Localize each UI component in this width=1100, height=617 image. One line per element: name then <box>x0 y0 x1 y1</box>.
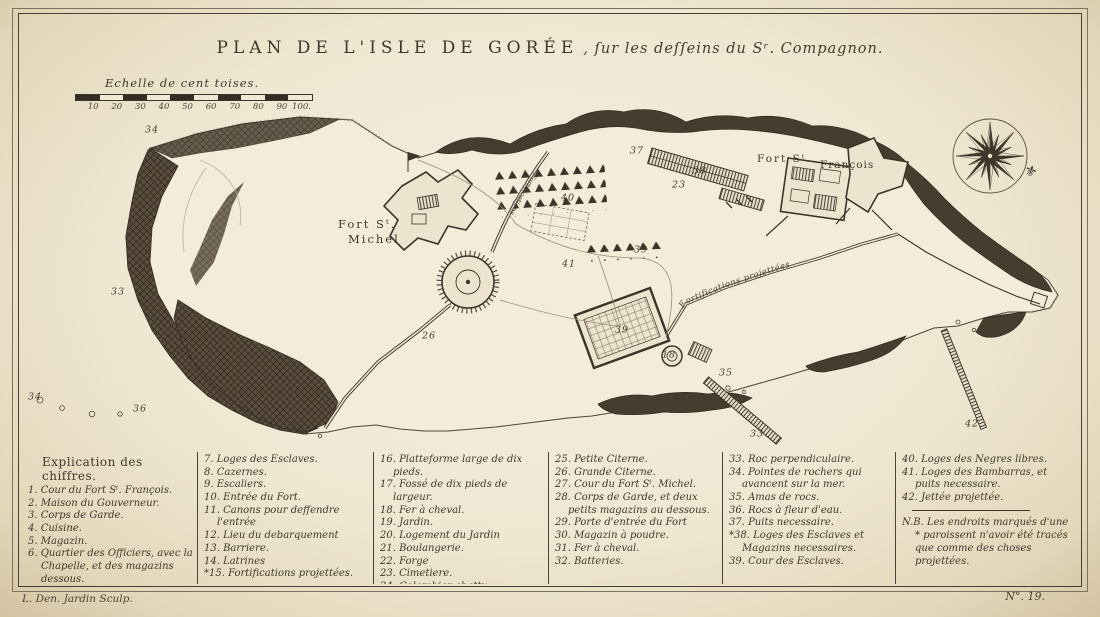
scale-tick: 90 <box>264 102 288 112</box>
legend-item: *15. Fortifications projettées. <box>204 568 370 581</box>
legend-item: 40. Loges des Negres libres. <box>902 454 1075 467</box>
legend-column-6: 40. Loges des Negres libres.41. Loges de… <box>895 452 1078 584</box>
plate-number: N°. 19. <box>1005 590 1045 603</box>
scale-label: Echelle de cent toises. <box>105 76 325 90</box>
title-subtitle: , ſur les deſſeins du Sʳ. Compagnon. <box>583 41 883 57</box>
legend-item: 36. Rocs à fleur d'eau. <box>729 505 892 518</box>
title-main: PLAN DE L'ISLE DE GORÉE <box>217 38 579 58</box>
legend-item: 31. Fer à cheval. <box>555 543 719 556</box>
legend-note: N.B. Les endroits marqués d'une * parois… <box>902 516 1075 568</box>
legend-item: 26. Grande Citerne. <box>555 467 719 480</box>
legend-item: 10. Entrée du Fort. <box>204 492 370 505</box>
scale-tick: 60 <box>193 102 217 112</box>
legend-item: 30. Magazin à poudre. <box>555 530 719 543</box>
legend-item: 39. Cour des Esclaves. <box>729 556 892 569</box>
legend-item: 35. Amas de rocs. <box>729 492 892 505</box>
legend-item: 3. Corps de Garde. <box>28 510 194 523</box>
scale-ticks: 102030405060708090100. <box>75 102 317 112</box>
compass-rose-icon: ⚜ <box>946 112 1046 202</box>
scale-tick: 10 <box>75 102 99 112</box>
legend-item: 18. Fer à cheval. <box>380 505 545 518</box>
legend-item: 42. Jettée projettée. <box>902 492 1075 505</box>
legend-item: 14. Latrines <box>204 556 370 569</box>
legend-item: 37. Puits necessaire. <box>729 517 892 530</box>
legend-item: 4. Cuisine. <box>28 523 194 536</box>
legend-item: 13. Barriere. <box>204 543 370 556</box>
fort-francois-label-line2: François <box>820 159 874 171</box>
legend-item: 25. Petite Citerne. <box>555 454 719 467</box>
legend-column-3: 16. Platteforme large de dix pieds.17. F… <box>373 452 548 584</box>
legend-item: 11. Canons pour deffendre l'entrée <box>204 505 370 530</box>
legend-item: 19. Jardin. <box>380 517 545 530</box>
legend-item: 33. Roc perpendiculaire. <box>729 454 892 467</box>
projected-jetty <box>941 329 986 430</box>
plate-title: PLAN DE L'ISLE DE GORÉE , ſur les deſſei… <box>0 38 1100 58</box>
scale-tick: 80 <box>240 102 264 112</box>
scale-tick: 100. <box>287 102 311 112</box>
legend-item: *38. Loges des Esclaves et Magazins nece… <box>729 530 892 555</box>
engraver-credit: L. Den. Jardin Sculp. <box>22 593 133 605</box>
legend-column-4: 25. Petite Citerne.26. Grande Citerne.27… <box>548 452 722 584</box>
legend-item: 21. Boulangerie. <box>380 543 545 556</box>
legend-item: 23. Cimetiere. <box>380 568 545 581</box>
legend-item: 6. Quartier des Officiers, avec la Chape… <box>28 548 194 584</box>
scale-bar <box>75 94 313 101</box>
legend-item: 17. Fossé de dix pieds de largeur. <box>380 479 545 504</box>
legend-item: 28. Corps de Garde, et deux petits magaz… <box>555 492 719 517</box>
legend-item: 16. Platteforme large de dix pieds. <box>380 454 545 479</box>
legend-column-5: 33. Roc perpendiculaire.34. Pointes de r… <box>722 452 895 584</box>
legend-heading: Explication des chiffres. <box>42 455 194 483</box>
legend-item: 20. Logement du Jardin <box>380 530 545 543</box>
fleur-de-lis-icon: ⚜ <box>1021 161 1040 183</box>
fort-michel-label-line1: Fort Sᵗ. <box>338 217 396 231</box>
legend-item: 29. Porte d'entrée du Fort <box>555 517 719 530</box>
fort-francois-label-line1: Fort Sᵗ. <box>757 153 812 165</box>
legend-item: 41. Loges des Bambarras, et puits necess… <box>902 467 1075 492</box>
legend-item: 5. Magazin. <box>28 536 194 549</box>
fort-michel-label-line2: Michel <box>348 232 400 246</box>
legend-item: 9. Escaliers. <box>204 479 370 492</box>
legend-item: 22. Forge <box>380 556 545 569</box>
legend-item: 7. Loges des Esclaves. <box>204 454 370 467</box>
legend-item: 8. Cazernes. <box>204 467 370 480</box>
legend-column-1: Explication des chiffres. 1. Cour du For… <box>22 452 197 584</box>
note-divider <box>912 510 1030 511</box>
scale-tick: 30 <box>122 102 146 112</box>
legend-item: 27. Cour du Fort Sᵗ. Michel. <box>555 479 719 492</box>
scale-tick: 20 <box>99 102 123 112</box>
scale-tick: 50 <box>169 102 193 112</box>
legend: Explication des chiffres. 1. Cour du For… <box>22 452 1078 584</box>
legend-item: 24. Colombier abattu. <box>380 581 545 584</box>
scale-tick: 70 <box>217 102 241 112</box>
scale-bar-block: Echelle de cent toises. 1020304050607080… <box>75 76 325 112</box>
legend-column-2: 7. Loges des Esclaves.8. Cazernes.9. Esc… <box>197 452 373 584</box>
legend-item: 34. Pointes de rochers qui avancent sur … <box>729 467 892 492</box>
legend-item: 1. Cour du Fort Sᵗ. François. <box>28 485 194 498</box>
scale-tick: 40 <box>146 102 170 112</box>
legend-item: 12. Lieu du debarquement <box>204 530 370 543</box>
legend-item: 2. Maison du Gouverneur. <box>28 498 194 511</box>
legend-item: 32. Batteries. <box>555 556 719 569</box>
